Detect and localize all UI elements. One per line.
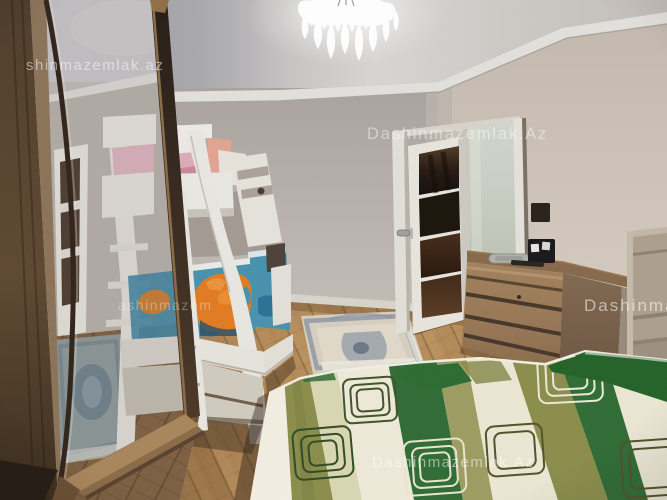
svg-text:ashinmazem: ashinmazem — [118, 297, 212, 313]
svg-text:Dashinmazemlak.Az: Dashinmazemlak.Az — [367, 125, 548, 143]
svg-text:Dashinmaz: Dashinmaz — [584, 296, 667, 315]
svg-text:shinmazemlak.az: shinmazemlak.az — [26, 57, 164, 74]
svg-text:Dashinmazemlak.Az: Dashinmazemlak.Az — [372, 454, 534, 471]
